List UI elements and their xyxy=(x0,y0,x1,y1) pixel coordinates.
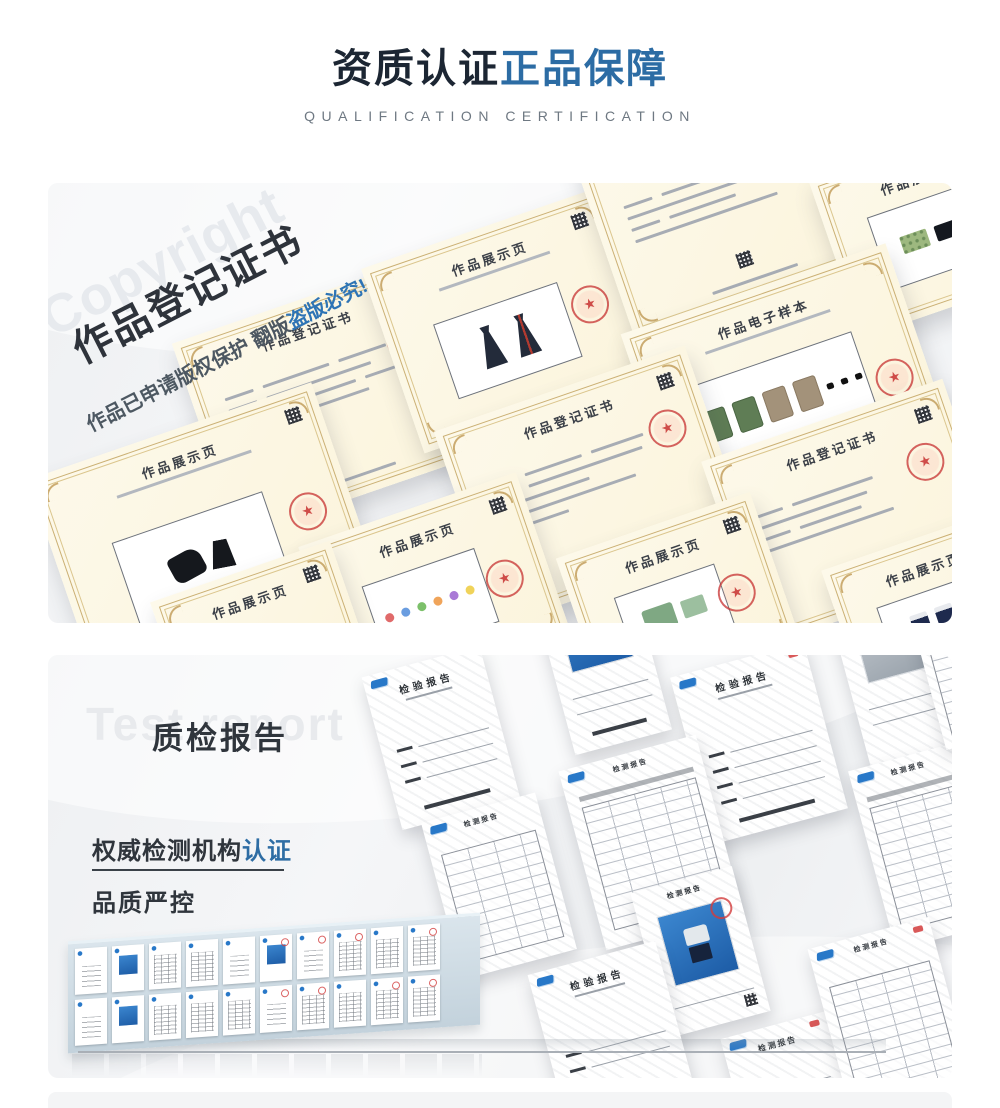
dress-graphic xyxy=(471,322,511,371)
bag-graphic xyxy=(165,546,208,587)
test-report-headline: 质检报告 xyxy=(152,713,288,758)
corner-flourish-icon xyxy=(449,434,469,454)
report-thumbnail xyxy=(371,926,403,974)
corner-flourish-icon xyxy=(766,619,786,623)
test-report-table-page: 检测报告 xyxy=(848,741,952,950)
report-thumbnail xyxy=(149,942,181,990)
text-line xyxy=(225,389,254,402)
report-thumbnail xyxy=(334,929,366,977)
jersey-graphic xyxy=(909,610,934,623)
toy-graphic xyxy=(465,585,476,596)
results-table xyxy=(869,783,952,932)
field-label xyxy=(716,783,732,790)
report-thumbnail xyxy=(371,977,403,1025)
report-thumbnail xyxy=(260,985,292,1033)
authority-text: 权威检测机构 xyxy=(92,838,242,865)
field-label xyxy=(712,767,728,774)
title-blue-part: 正品保障 xyxy=(500,47,668,91)
authority-line: 权威检测机构认证 xyxy=(92,831,292,866)
section-header: 资质认证正品保障 QUALIFICATION CERTIFICATION xyxy=(0,36,1000,124)
toy-graphic xyxy=(449,590,460,601)
product-image xyxy=(433,282,583,399)
text-line xyxy=(438,251,550,292)
page-title: 资质认证正品保障 xyxy=(0,36,1000,94)
corner-flourish-icon xyxy=(536,612,556,623)
report-thumbnail xyxy=(408,923,440,971)
red-seal-icon: ★ xyxy=(284,487,332,535)
toy-graphic xyxy=(433,596,444,607)
qr-code-icon xyxy=(736,250,755,269)
report-thumbnail xyxy=(149,993,181,1041)
next-section-strip xyxy=(48,1092,952,1108)
text-line xyxy=(631,219,660,232)
report-thumbnail xyxy=(223,936,255,984)
qualification-section: 资质认证正品保障 QUALIFICATION CERTIFICATION Cop… xyxy=(0,0,1000,1108)
text-line xyxy=(117,450,252,499)
toy-graphic xyxy=(417,601,428,612)
certificate-text-lines xyxy=(620,183,826,243)
corner-flourish-icon xyxy=(716,464,736,484)
corner-flourish-icon xyxy=(636,337,656,357)
text-line xyxy=(524,454,582,476)
wall-reflection xyxy=(72,1054,482,1076)
report-thumbnail xyxy=(334,980,366,1028)
authority-highlight: 认证 xyxy=(242,838,292,865)
certificate-title: 作品展示页 xyxy=(376,211,603,305)
garment-swatch xyxy=(731,396,764,434)
text-line xyxy=(635,192,778,244)
field-label xyxy=(708,752,724,759)
green-skirt-graphic xyxy=(680,594,709,619)
corner-flourish-icon xyxy=(863,259,883,279)
vest-graphic xyxy=(207,538,236,570)
report-thumbnail xyxy=(297,931,329,979)
shorts-graphic xyxy=(688,942,712,963)
floral-top-graphic xyxy=(899,229,931,255)
report-thumbnail xyxy=(186,990,218,1038)
field-label xyxy=(396,746,412,753)
report-thumbnail xyxy=(186,939,218,987)
report-thumbnail xyxy=(75,947,107,995)
divider-line xyxy=(92,869,284,871)
report-photo-page xyxy=(534,655,672,755)
quality-line: 品质严控 xyxy=(92,883,196,918)
report-thumbnails-wall xyxy=(68,913,480,1054)
page-subtitle: QUALIFICATION CERTIFICATION xyxy=(0,108,1000,124)
report-thumbnail xyxy=(112,944,144,992)
text-line xyxy=(800,505,862,529)
floor-line xyxy=(78,1051,886,1053)
text-line xyxy=(262,363,329,389)
copyright-certificates-panel: Copyright 作品登记证书 作品已申请版权保护 翻版盗版必究! 作品登记证… xyxy=(48,183,952,623)
toy-graphic xyxy=(401,607,412,618)
text-line xyxy=(669,193,736,219)
corner-flourish-icon xyxy=(376,271,396,291)
toy-graphic xyxy=(385,612,396,623)
garment-icon xyxy=(854,373,863,381)
green-top-graphic xyxy=(641,602,679,623)
report-thumbnail xyxy=(297,982,329,1030)
product-image xyxy=(361,548,500,623)
jersey-graphic xyxy=(934,602,952,623)
report-thumbnail xyxy=(112,995,144,1043)
garment-icon xyxy=(840,378,849,386)
report-thumbnail xyxy=(223,987,255,1035)
field-label xyxy=(400,762,416,769)
report-thumbnail xyxy=(75,998,107,1046)
garment-swatch xyxy=(761,386,794,424)
text-line xyxy=(623,197,652,210)
product-image xyxy=(876,575,952,623)
red-seal-icon: ★ xyxy=(566,280,614,328)
title-dark-part: 资质认证 xyxy=(332,47,500,91)
test-report-panel: Test report 质检报告 权威检测机构认证 品质严控 检验报告 xyxy=(48,655,952,1078)
dress-graphic xyxy=(505,310,545,359)
corner-flourish-icon xyxy=(836,573,856,593)
corner-flourish-icon xyxy=(824,184,844,204)
corner-flourish-icon xyxy=(571,561,591,581)
pants-graphic xyxy=(934,219,952,242)
garment-icon xyxy=(826,383,835,391)
corner-flourish-icon xyxy=(48,482,63,502)
report-thumbnail xyxy=(408,974,440,1022)
garment-swatch xyxy=(791,375,824,413)
corner-flourish-icon xyxy=(165,605,185,623)
report-thumbnail xyxy=(260,934,292,982)
